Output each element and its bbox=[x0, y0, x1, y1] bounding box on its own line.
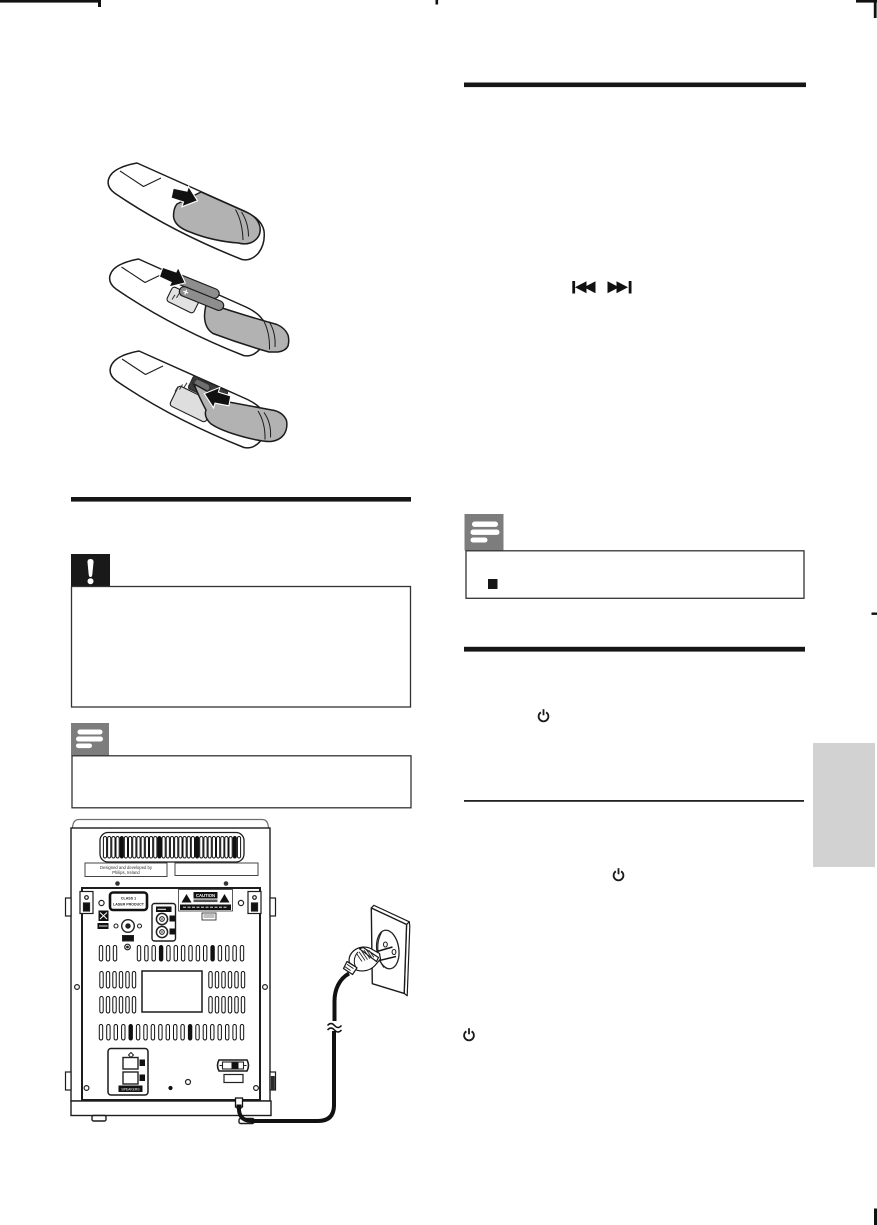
svg-text:CLASS 1: CLASS 1 bbox=[121, 897, 136, 901]
svg-text:Philips, Ireland: Philips, Ireland bbox=[112, 870, 140, 875]
svg-text:CAUTION: CAUTION bbox=[196, 893, 215, 898]
svg-text:LASER PRODUCT: LASER PRODUCT bbox=[113, 903, 145, 907]
svg-text:SPEAKERS: SPEAKERS bbox=[121, 1088, 140, 1092]
